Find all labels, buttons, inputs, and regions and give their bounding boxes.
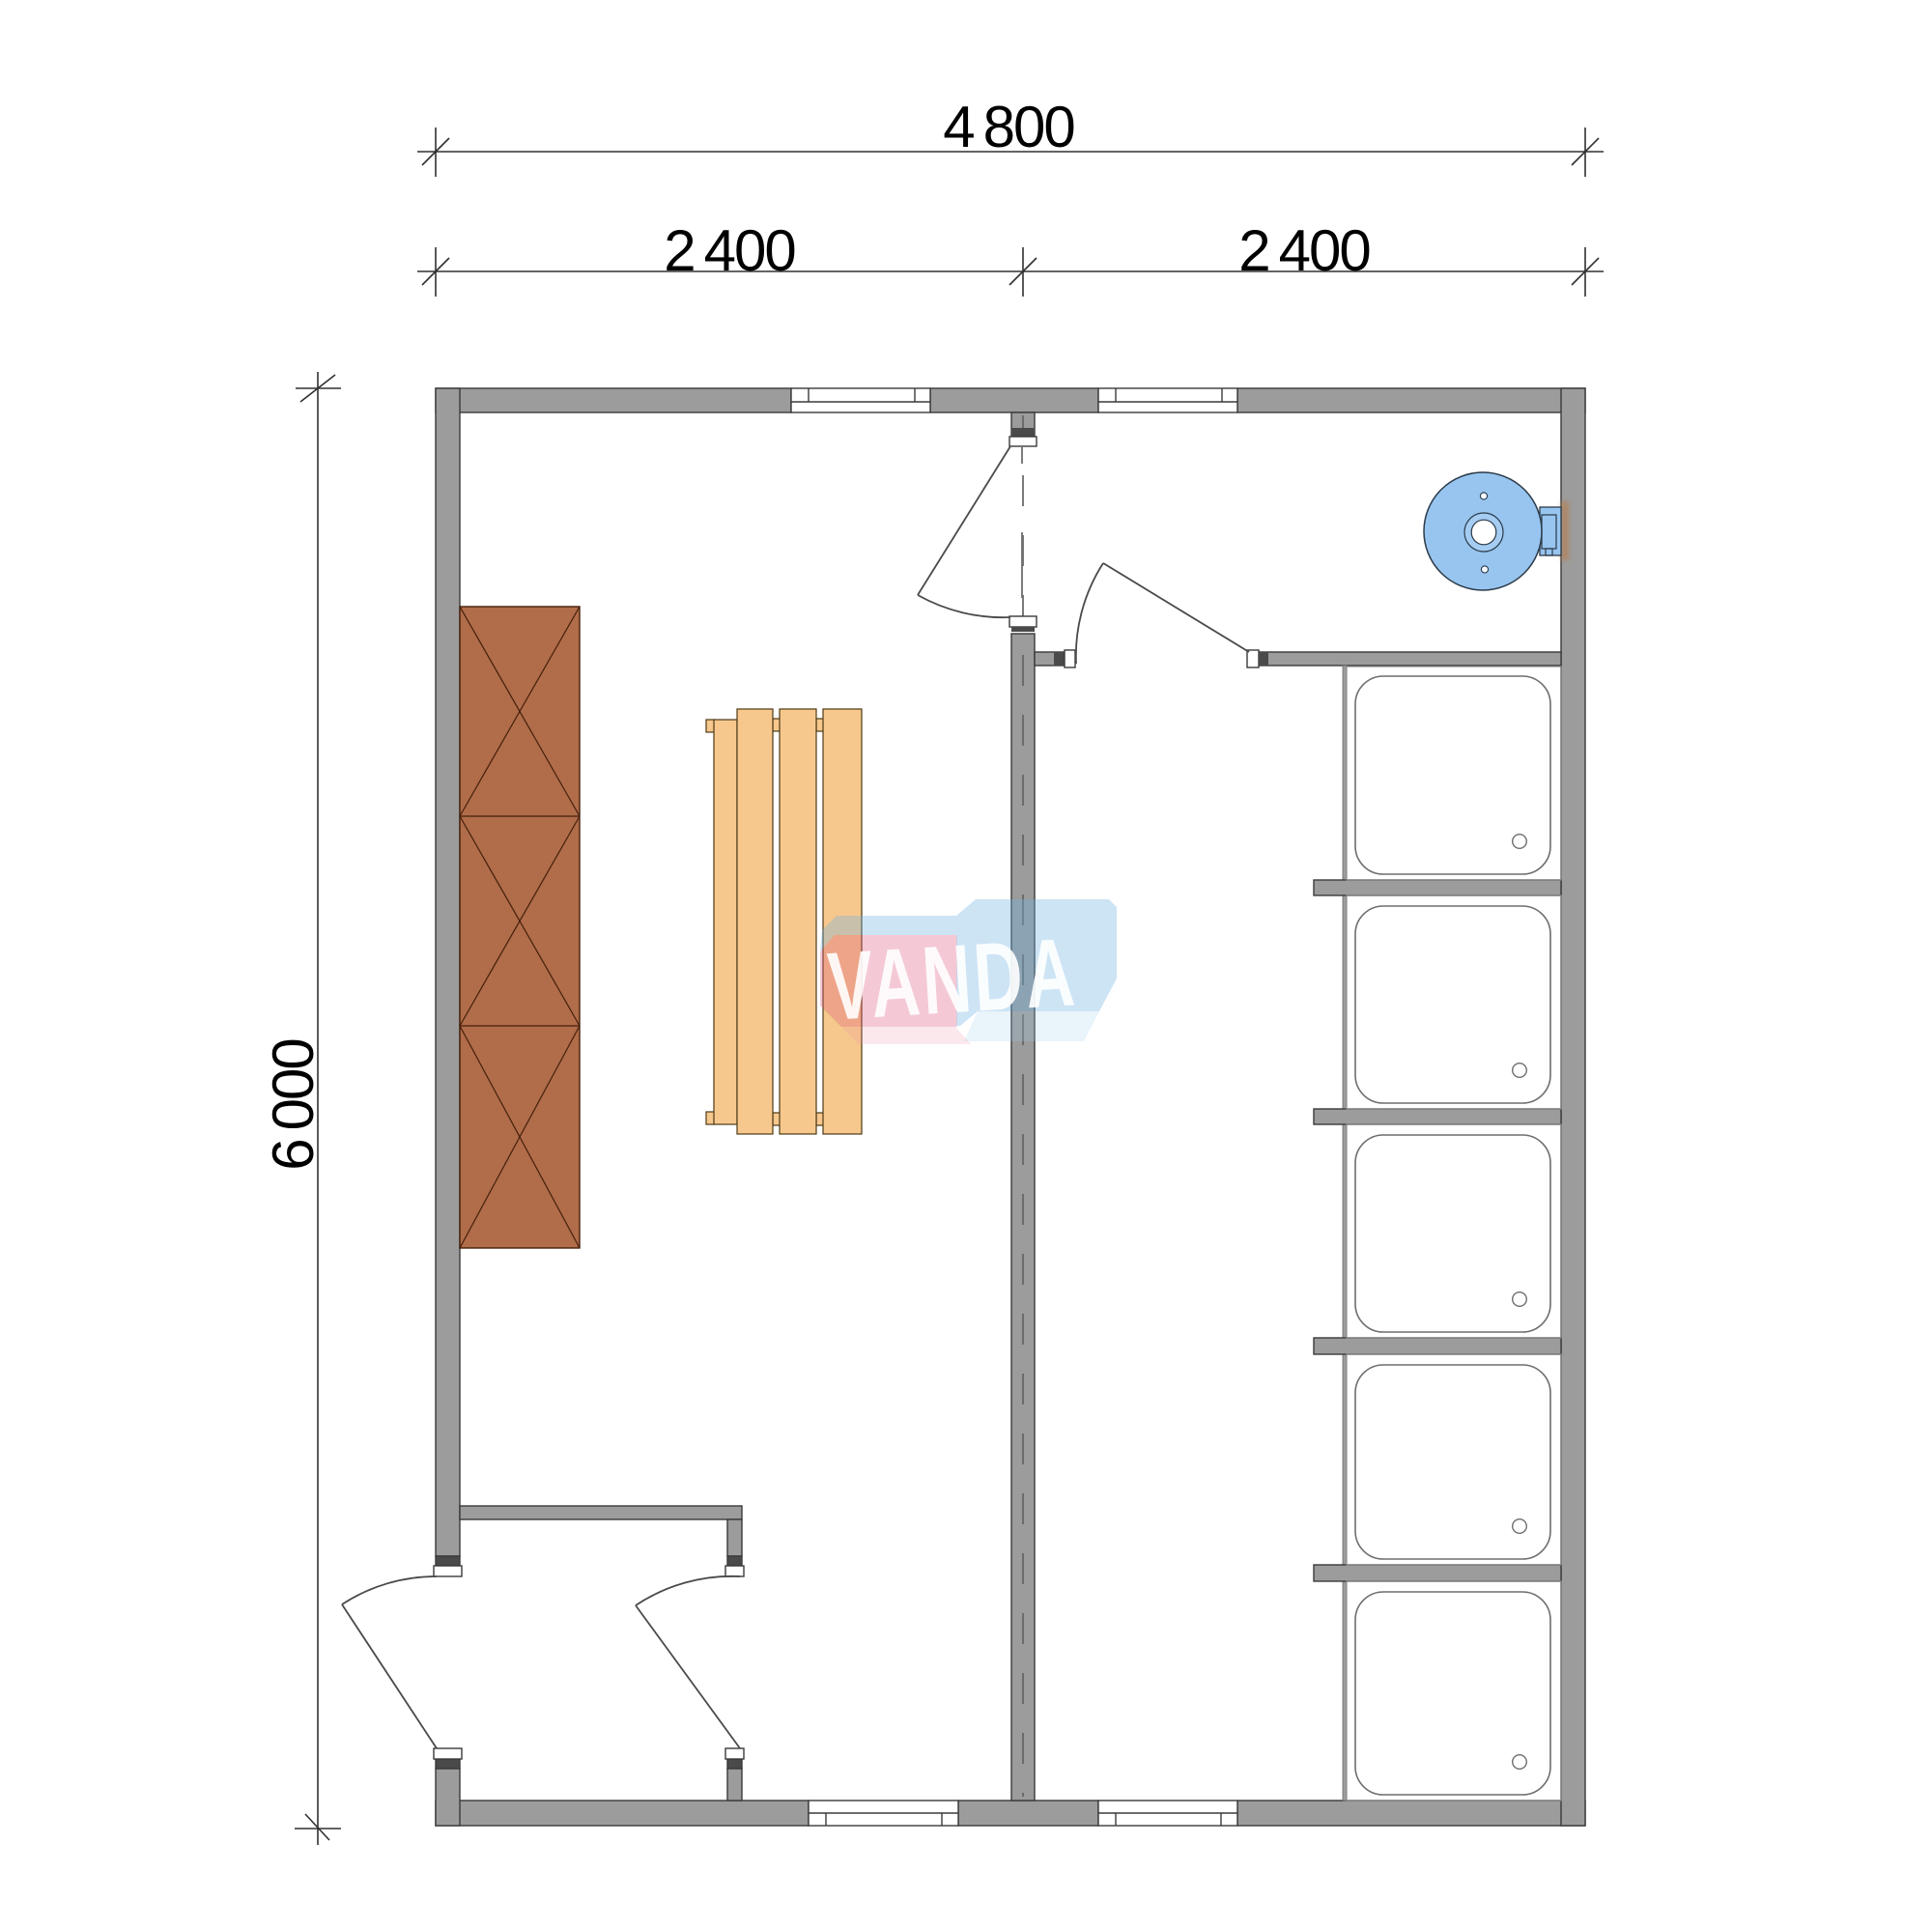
svg-text:4 800: 4 800: [943, 95, 1074, 159]
svg-text:6 000: 6 000: [261, 1039, 326, 1171]
svg-text:VANDA: VANDA: [825, 919, 1080, 1041]
svg-text:2 400: 2 400: [664, 218, 795, 283]
svg-text:2 400: 2 400: [1238, 218, 1370, 283]
